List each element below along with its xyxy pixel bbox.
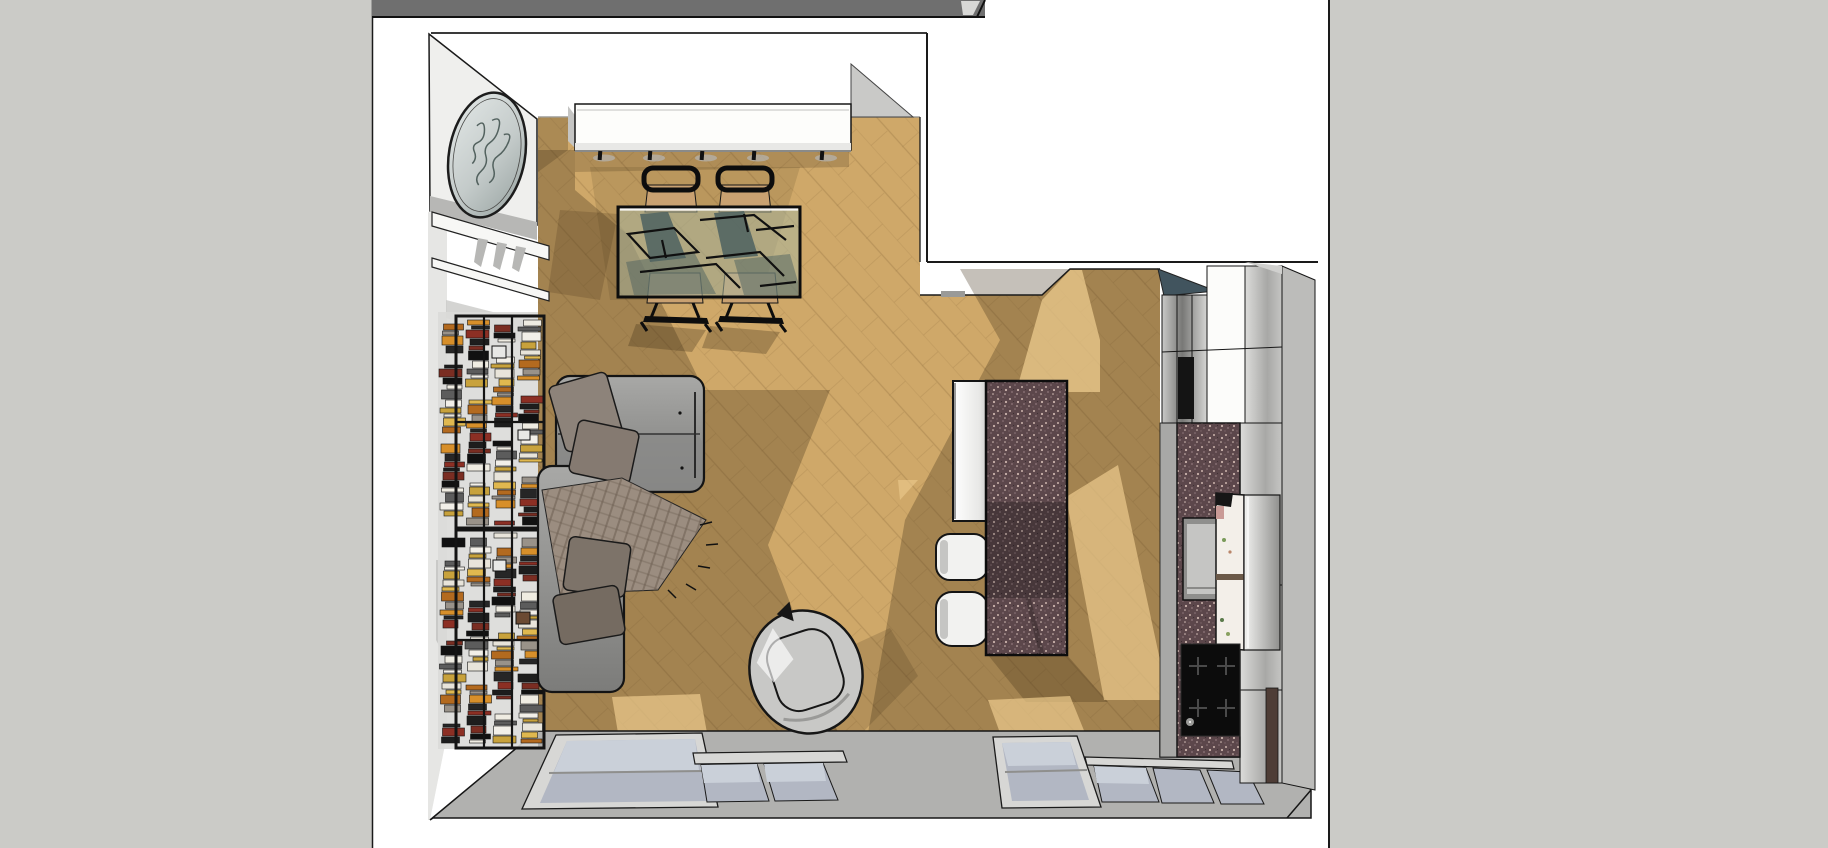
knob-dot — [1189, 721, 1191, 723]
cabinet-wood-strip — [1266, 688, 1278, 783]
window-reflection — [1002, 742, 1076, 766]
sink[interactable] — [1183, 518, 1220, 600]
bookshelf[interactable] — [438, 312, 544, 749]
stool-shade — [940, 540, 948, 574]
wall-cabinets[interactable] — [1207, 266, 1245, 423]
window-left-double-bar — [693, 751, 847, 764]
fridge-detail — [1216, 493, 1233, 507]
bar-stool-2[interactable] — [936, 592, 988, 646]
window-reflection — [1094, 766, 1149, 784]
wall-base-shadow — [941, 291, 965, 297]
cabinet-niche — [1178, 357, 1194, 419]
sofa-pillow-4[interactable] — [552, 585, 626, 646]
island-shadow-band — [986, 502, 1067, 598]
sofa-pillow-2[interactable] — [568, 419, 640, 485]
dining-table[interactable] — [618, 207, 800, 297]
cooktop[interactable] — [1181, 644, 1240, 736]
window-reflection — [701, 764, 760, 783]
cabinet-column-top[interactable] — [1245, 266, 1282, 423]
base-cabinet-side — [1160, 423, 1177, 757]
right-outer-wall — [1282, 266, 1315, 790]
stool-shade — [940, 599, 948, 639]
fridge-shelf — [1216, 574, 1244, 580]
fridge-detail — [1216, 506, 1224, 519]
island-cabinet-panel[interactable] — [953, 381, 988, 521]
kitchen-island-group[interactable] — [936, 381, 1067, 655]
window-reflection — [554, 739, 699, 772]
window-reflection — [764, 763, 826, 782]
kitchen-run[interactable] — [1160, 262, 1315, 790]
top-wall-bar[interactable] — [372, 0, 985, 17]
bar-stool-1[interactable] — [936, 534, 988, 580]
refrigerator[interactable] — [1216, 493, 1280, 650]
viewport-canvas[interactable] — [0, 0, 1828, 848]
fridge-door-steel — [1244, 495, 1280, 650]
